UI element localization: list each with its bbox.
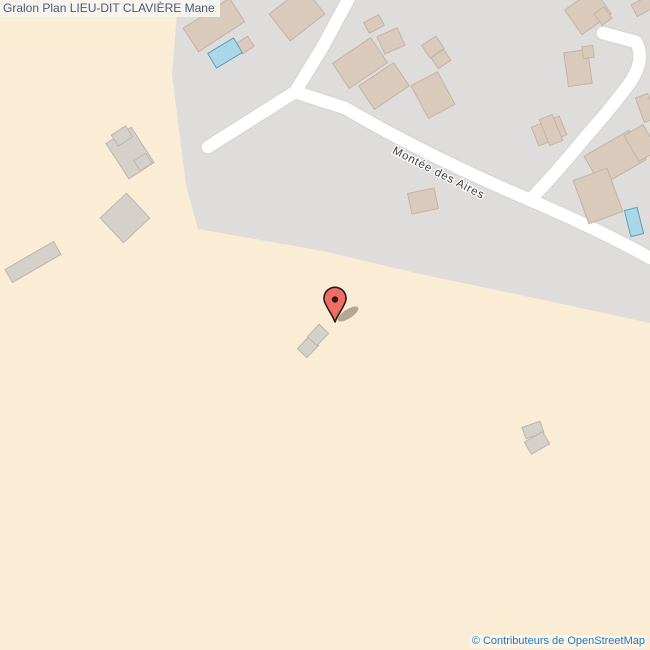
building — [582, 45, 595, 58]
page-title: Gralon Plan LIEU-DIT CLAVIÈRE Mane — [0, 0, 220, 17]
map-canvas[interactable]: Montée des Aires — [0, 0, 650, 650]
map-viewport[interactable]: Montée des Aires Gralon Plan LIEU-DIT CL… — [0, 0, 650, 650]
location-pin-dot — [332, 296, 338, 302]
copyright-link[interactable]: © Contributeurs de OpenStreetMap — [470, 635, 647, 648]
